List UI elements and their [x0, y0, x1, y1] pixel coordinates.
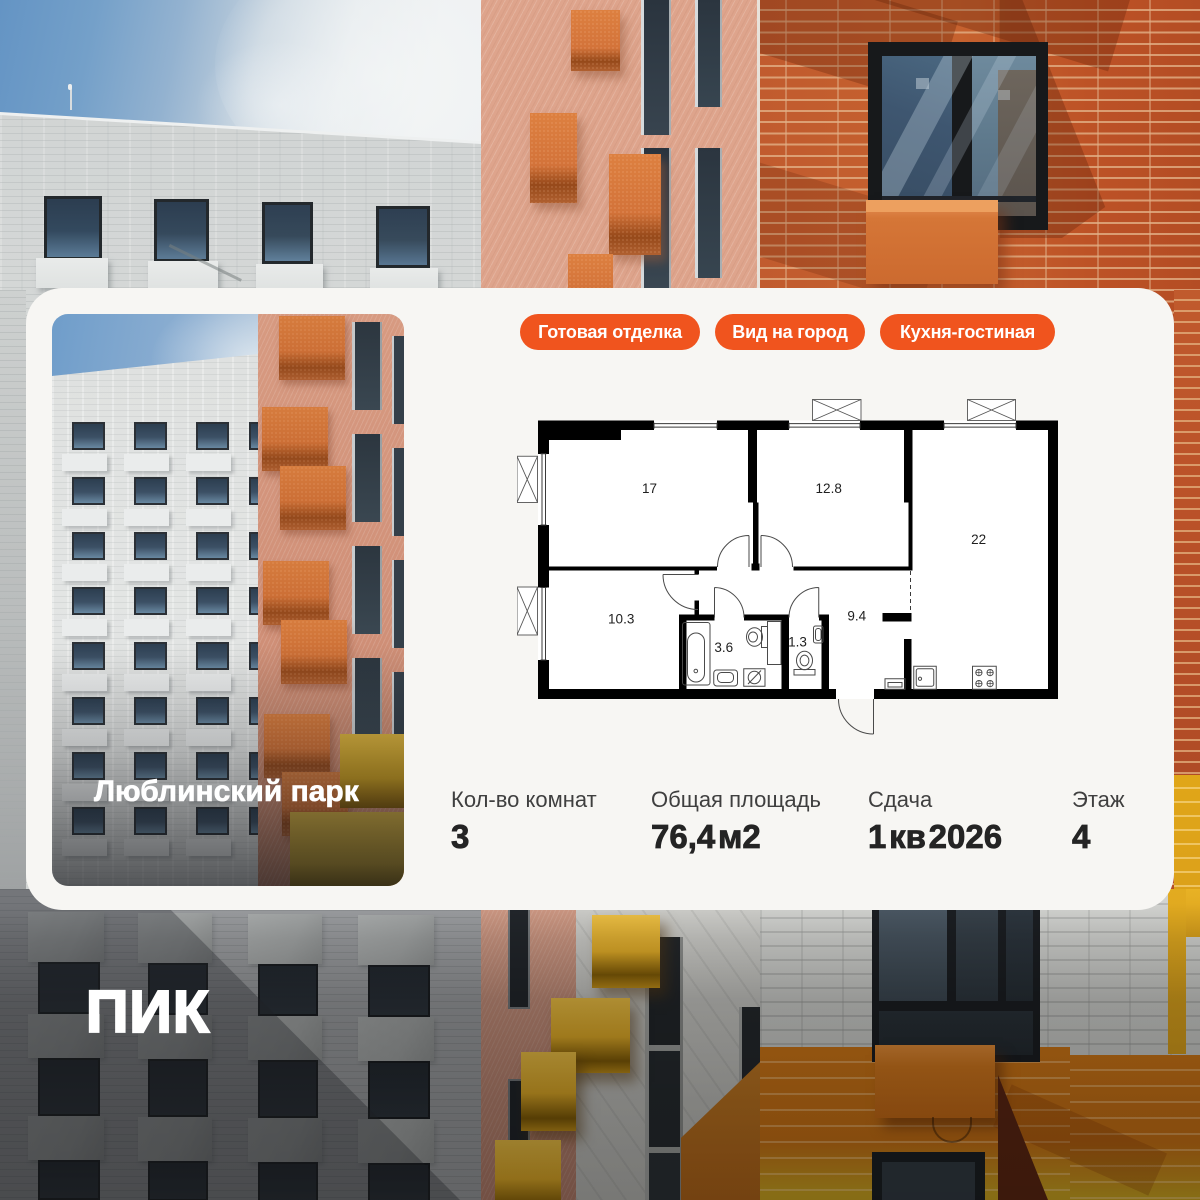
svg-text:10.3: 10.3	[608, 612, 634, 627]
svg-text:3.6: 3.6	[714, 640, 733, 655]
svg-text:22: 22	[971, 532, 986, 547]
svg-text:17: 17	[642, 481, 657, 496]
svg-text:1.3: 1.3	[788, 635, 807, 650]
svg-text:9.4: 9.4	[847, 609, 866, 624]
svg-text:12.8: 12.8	[816, 481, 842, 496]
